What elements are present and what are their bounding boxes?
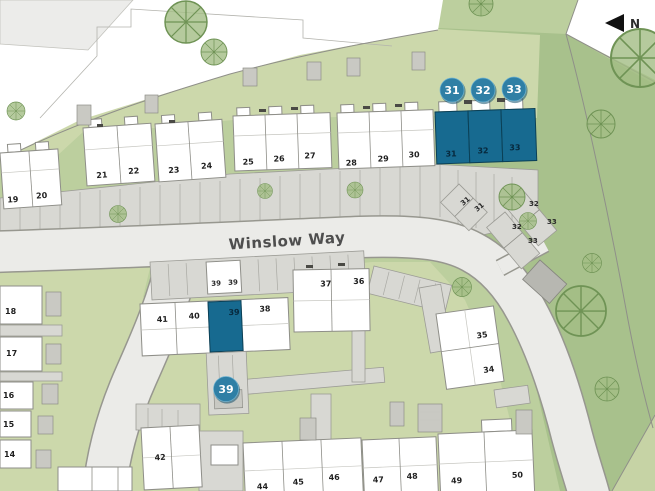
parking-label-32b: 32 — [512, 223, 522, 231]
plot-label-30: 30 — [408, 150, 420, 159]
parking-label-39a: 39 — [211, 279, 221, 288]
plot-label-49: 49 — [451, 476, 463, 485]
plot-label-24: 24 — [201, 161, 213, 171]
plot-label-31: 31 — [445, 149, 457, 158]
plot-label-15: 15 — [3, 420, 15, 429]
north-label: N — [630, 17, 640, 31]
tree-icon — [583, 254, 602, 273]
tree-icon — [258, 184, 273, 199]
house-25-26-27: 25 26 27 — [233, 105, 332, 171]
plot-label-19: 19 — [7, 195, 19, 205]
house-31-32-33-highlighted[interactable]: 31 32 33 — [435, 99, 537, 164]
parking-label-33a: 33 — [547, 218, 557, 226]
house-19-20: 19 20 — [0, 141, 62, 209]
tree-icon — [165, 1, 207, 43]
site-plan-map: 39 39 19 20 — [0, 0, 655, 491]
tree-icon — [520, 213, 537, 230]
plot-label-33: 33 — [509, 143, 520, 152]
tree-icon — [499, 184, 525, 210]
tree-icon — [556, 286, 606, 336]
plot-label-16: 16 — [3, 391, 15, 400]
parking-label-32a: 32 — [529, 200, 539, 208]
house-23-24: 23 24 — [154, 111, 225, 182]
plot-33-building[interactable] — [501, 109, 537, 162]
badge-label-39: 39 — [218, 383, 233, 396]
plot-label-50: 50 — [512, 470, 524, 479]
tree-icon — [587, 110, 615, 138]
house-21-22: 21 22 — [82, 115, 154, 186]
house-37-36: 37 36 — [293, 269, 370, 332]
plot-label-17: 17 — [6, 349, 17, 358]
plot-label-41: 41 — [157, 315, 169, 324]
house-47-48: 47 48 — [362, 437, 439, 491]
plot-label-32: 32 — [477, 146, 488, 155]
house-35-34: 35 34 — [436, 306, 504, 389]
tree-icon — [7, 102, 25, 120]
plot-label-39: 39 — [228, 308, 240, 317]
plot-label-14: 14 — [4, 450, 16, 459]
badge-label-32: 32 — [475, 84, 490, 97]
plot-label-27: 27 — [304, 151, 315, 160]
parking-label-33b: 33 — [528, 237, 538, 245]
tree-icon — [110, 206, 127, 223]
site-plan-page: 39 39 19 20 — [0, 0, 655, 491]
plot-label-36: 36 — [353, 277, 365, 286]
plot-label-46: 46 — [328, 473, 340, 482]
driveway-between-42-44 — [199, 431, 243, 491]
tree-icon — [201, 39, 227, 65]
plot-label-42: 42 — [154, 453, 166, 463]
tree-icon — [595, 377, 619, 401]
plot-label-40: 40 — [188, 311, 200, 320]
plot-label-44: 44 — [257, 482, 269, 491]
plot-label-22: 22 — [128, 166, 140, 176]
plot-label-20: 20 — [36, 191, 48, 201]
house-28-29-30: 28 29 30 — [337, 102, 435, 169]
plot-label-26: 26 — [273, 154, 285, 163]
plot-label-25: 25 — [242, 157, 254, 166]
parking-label-39b: 39 — [228, 278, 238, 287]
plot-label-21: 21 — [96, 170, 108, 180]
plot-label-28: 28 — [346, 158, 358, 167]
plot-label-47: 47 — [373, 475, 385, 484]
plot-label-45: 45 — [293, 477, 305, 486]
tree-icon — [347, 182, 363, 198]
house-44-45-46: 44 45 46 — [243, 438, 364, 491]
plot-label-48: 48 — [406, 472, 418, 481]
plot-label-23: 23 — [168, 165, 180, 175]
badge-label-33: 33 — [506, 83, 521, 96]
plot-label-29: 29 — [377, 154, 389, 163]
plot-label-35: 35 — [476, 330, 489, 341]
house-42: 42 — [141, 425, 202, 490]
tree-icon — [453, 278, 472, 297]
plot-label-34: 34 — [483, 364, 496, 375]
plot-label-18: 18 — [5, 307, 17, 316]
plot-label-37: 37 — [320, 279, 331, 288]
house-bottom-cut — [58, 467, 132, 491]
badge-label-31: 31 — [444, 84, 459, 97]
plot-label-38: 38 — [259, 304, 271, 313]
